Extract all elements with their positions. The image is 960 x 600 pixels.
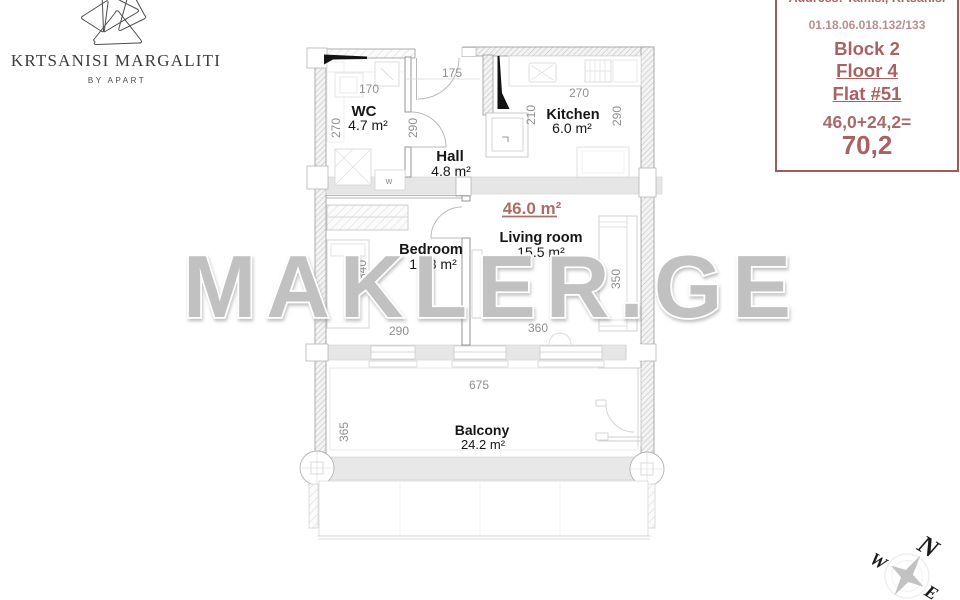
svg-text:W: W	[866, 548, 892, 574]
svg-text:MAKLER.GE: MAKLER.GE	[183, 237, 801, 336]
